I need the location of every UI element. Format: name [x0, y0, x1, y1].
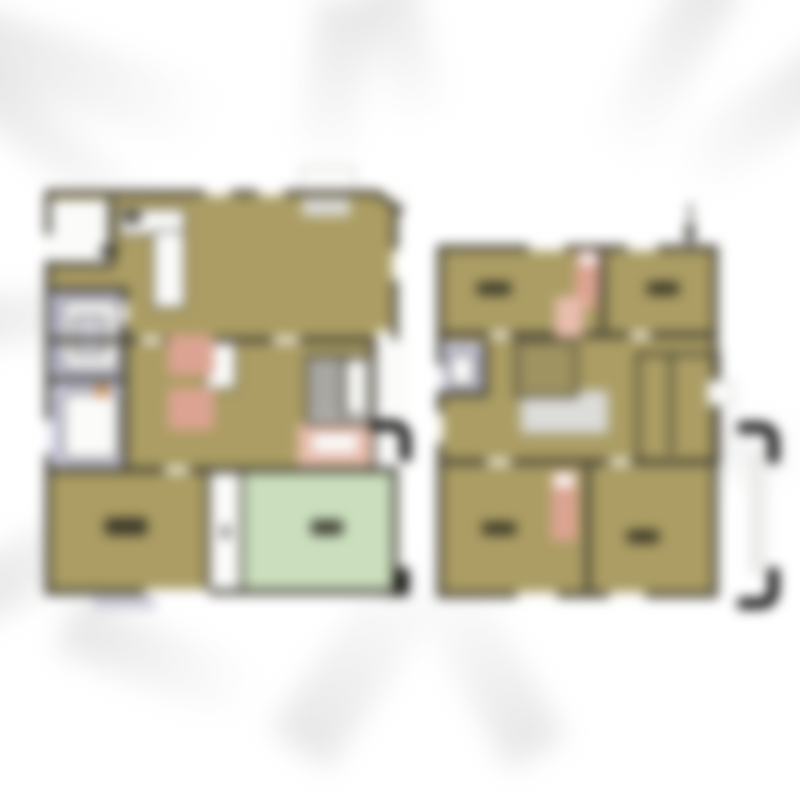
window-gap — [609, 592, 645, 598]
door-gap — [630, 332, 650, 338]
kitchen-counter — [152, 230, 186, 309]
sofa — [168, 388, 214, 430]
toilet — [449, 353, 475, 387]
room-label-smudge — [100, 246, 118, 256]
room-label-smudge — [482, 522, 516, 535]
entry-room — [50, 200, 108, 264]
door-gap — [487, 459, 511, 465]
window-gap — [145, 589, 209, 595]
staircase — [305, 355, 374, 426]
stair-steps — [308, 358, 342, 417]
wall — [240, 470, 244, 595]
wall — [440, 391, 488, 397]
sink-bowl — [95, 384, 109, 398]
door-gap — [122, 302, 128, 324]
wall — [600, 248, 606, 338]
room-label-smudge — [105, 518, 147, 535]
window-gap — [437, 413, 443, 443]
vent-pipe-base — [685, 225, 695, 241]
balcony-corner-top — [738, 422, 779, 463]
pillow — [579, 252, 598, 264]
wall — [205, 470, 210, 595]
bed — [555, 297, 583, 337]
wall — [108, 198, 114, 268]
room-label-smudge — [311, 520, 343, 535]
plans-layer — [0, 0, 800, 800]
room-label-smudge — [627, 530, 659, 543]
balcony-corner-bottom — [738, 568, 779, 609]
corner-bracket — [370, 420, 411, 461]
stair-divider — [342, 358, 346, 417]
wall — [437, 459, 718, 465]
washer-drum — [72, 315, 107, 356]
outer-wall-right-lower — [392, 470, 398, 595]
door-gap — [609, 459, 631, 465]
wall — [482, 342, 488, 394]
walk-in-closet — [636, 352, 720, 465]
closet-knob — [222, 526, 229, 538]
window-gap — [258, 190, 284, 196]
closet-divider — [669, 355, 673, 454]
pillow — [554, 474, 574, 487]
door-gap — [490, 332, 510, 338]
sofa — [168, 335, 214, 375]
wall — [50, 262, 114, 268]
window-gap — [529, 245, 565, 251]
window-gap — [392, 250, 398, 280]
stair-landing — [346, 362, 364, 412]
window-gap — [45, 420, 51, 454]
outer-wall-right — [712, 245, 718, 598]
first-floor-plan — [45, 190, 408, 602]
window-gap — [205, 190, 231, 196]
wall — [585, 465, 591, 592]
wall — [50, 377, 125, 383]
dining-table-top — [313, 434, 357, 452]
floor-plan-image — [0, 0, 800, 800]
staircase — [515, 340, 578, 398]
wall — [45, 467, 398, 473]
room-label-smudge — [647, 282, 679, 295]
window-gap — [627, 245, 657, 251]
window-gap — [45, 235, 51, 261]
outer-wall-bottom — [45, 589, 398, 595]
window-gap — [437, 365, 443, 391]
second-floor-plan — [437, 245, 720, 600]
stove — [123, 211, 141, 224]
outer-wall-bottom — [437, 592, 718, 598]
wall — [50, 287, 125, 293]
right-door-tab — [707, 380, 735, 406]
door-gap — [140, 337, 162, 343]
terrace-step — [93, 596, 155, 609]
window-gap — [517, 592, 557, 598]
door-gap — [165, 467, 189, 473]
room-label-smudge — [477, 282, 511, 295]
entrance-step — [302, 198, 350, 216]
bathtub — [62, 392, 119, 460]
door-gap — [273, 337, 299, 343]
bed — [551, 471, 577, 541]
balcony-strip — [750, 452, 768, 574]
